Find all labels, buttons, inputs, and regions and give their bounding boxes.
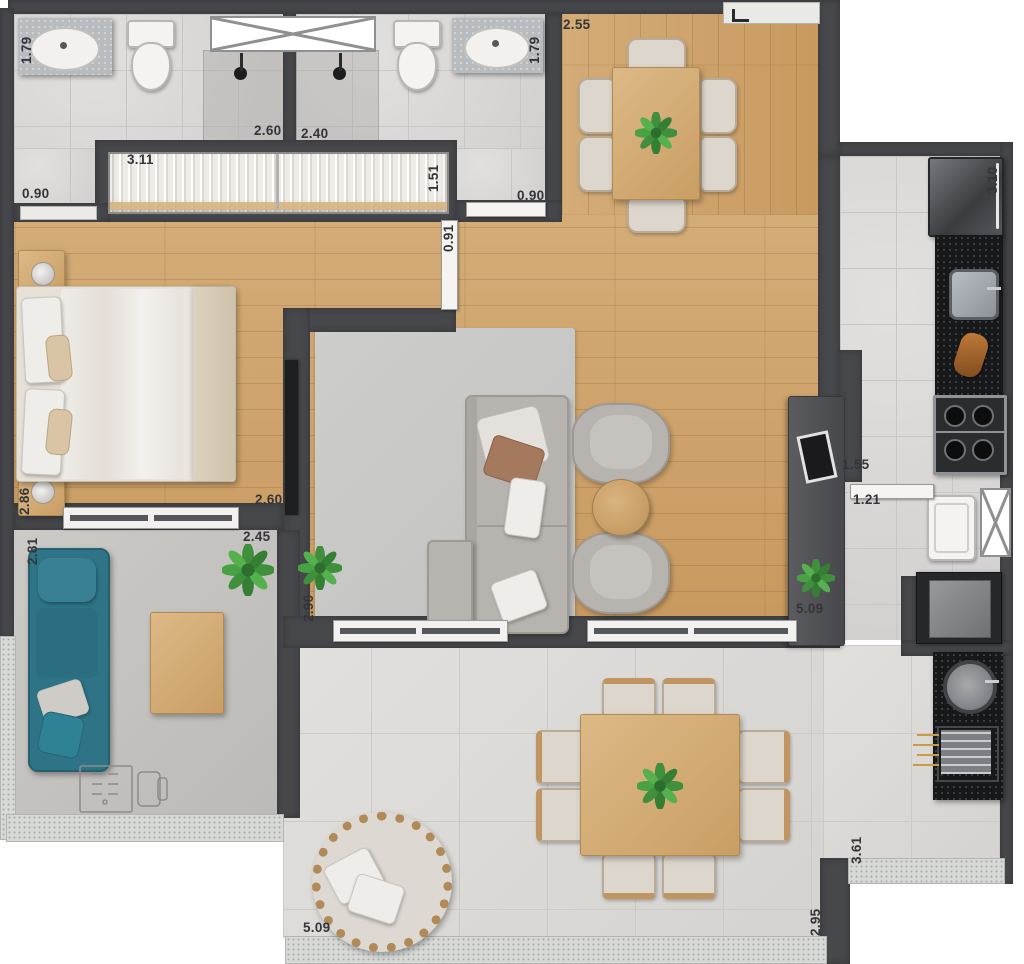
dimension-label: 0.91	[442, 225, 456, 252]
dimension-label: 5.09	[303, 921, 330, 935]
dimension-label: 2.60	[254, 124, 281, 138]
dimension-label: 2.81	[26, 538, 40, 565]
dimension-label: 5.09	[796, 602, 823, 616]
dimension-label: 3.10	[986, 167, 1000, 194]
dimension-label: 2.40	[301, 127, 328, 141]
dimension-label: 2.45	[243, 530, 270, 544]
dimension-label: 1.79	[20, 37, 34, 64]
dimension-labels-layer: 1.792.602.401.792.553.111.510.900.900.91…	[0, 0, 1024, 964]
dimension-label: 1.55	[842, 458, 869, 472]
dimension-label: 2.60	[255, 493, 282, 507]
dimension-label: 2.86	[18, 488, 32, 515]
dimension-label: 3.61	[850, 837, 864, 864]
dimension-label: 2.95	[809, 909, 823, 936]
dimension-label: 2.55	[563, 18, 590, 32]
dimension-label: 3.11	[127, 153, 154, 167]
floor-plan: 1.792.602.401.792.553.111.510.900.900.91…	[0, 0, 1024, 964]
dimension-label: 0.90	[22, 187, 49, 201]
dimension-label: 2.90	[302, 595, 316, 622]
dimension-label: 0.90	[517, 189, 544, 203]
dimension-label: 1.51	[427, 165, 441, 192]
dimension-label: 1.79	[528, 37, 542, 64]
dimension-label: 1.21	[853, 493, 880, 507]
